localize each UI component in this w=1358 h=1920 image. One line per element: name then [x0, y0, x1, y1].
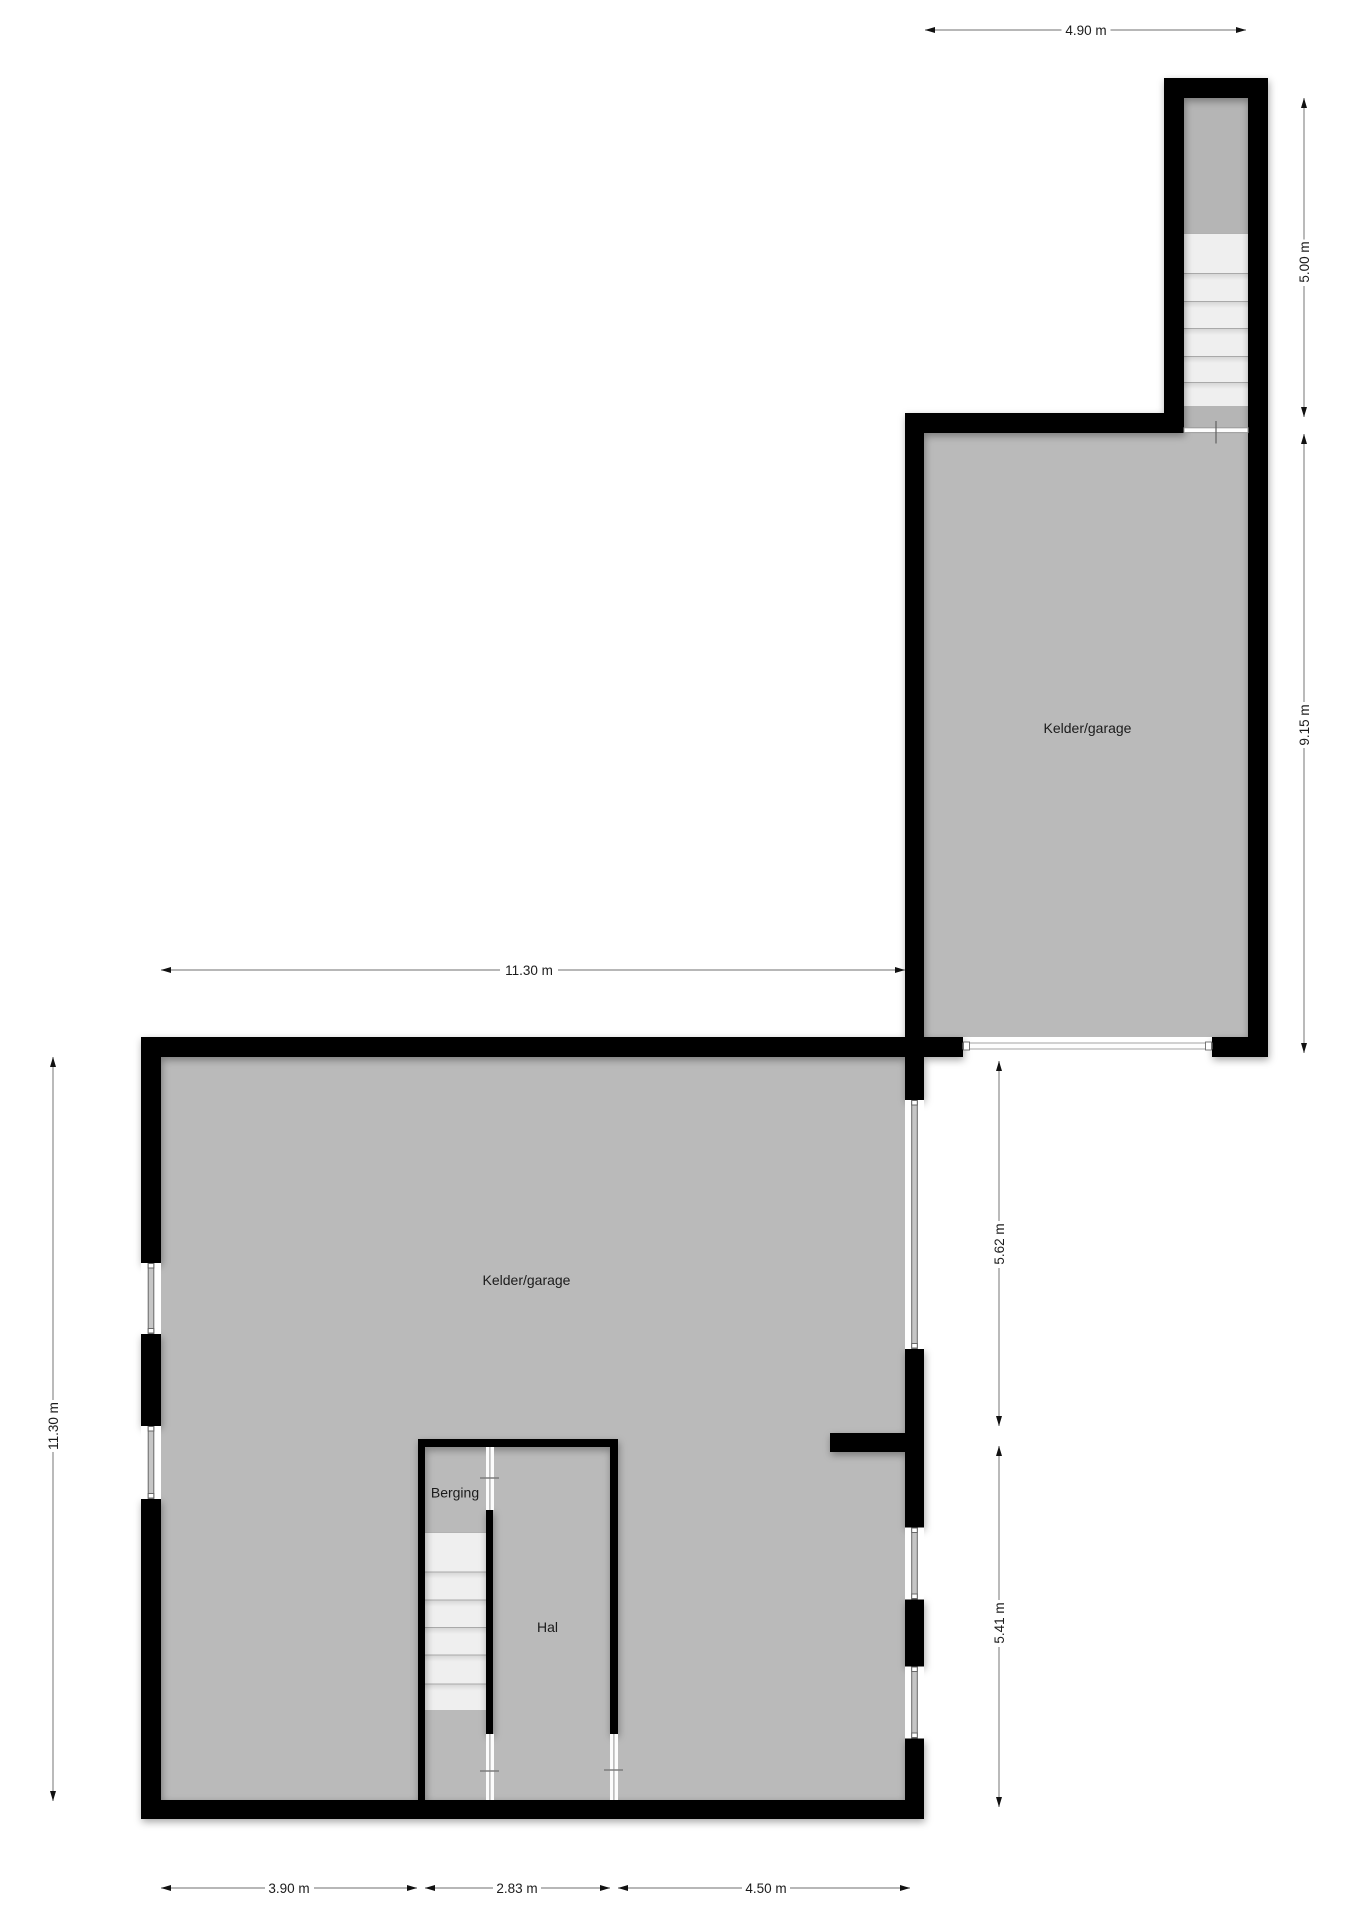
svg-text:11.30 m: 11.30 m	[505, 963, 553, 978]
svg-text:5.00 m: 5.00 m	[1297, 241, 1312, 282]
svg-text:9.15 m: 9.15 m	[1297, 704, 1312, 745]
svg-text:Hal: Hal	[537, 1619, 558, 1635]
svg-text:4.50 m: 4.50 m	[745, 1881, 786, 1896]
svg-text:Berging: Berging	[431, 1485, 479, 1501]
svg-text:2.83 m: 2.83 m	[496, 1881, 537, 1896]
svg-text:Kelder/garage: Kelder/garage	[483, 1272, 571, 1288]
svg-text:5.41 m: 5.41 m	[992, 1602, 1007, 1643]
svg-text:4.90 m: 4.90 m	[1065, 23, 1106, 38]
svg-text:5.62 m: 5.62 m	[992, 1223, 1007, 1264]
svg-text:Kelder/garage: Kelder/garage	[1044, 720, 1132, 736]
svg-text:11.30 m: 11.30 m	[46, 1402, 61, 1450]
svg-text:3.90 m: 3.90 m	[268, 1881, 309, 1896]
